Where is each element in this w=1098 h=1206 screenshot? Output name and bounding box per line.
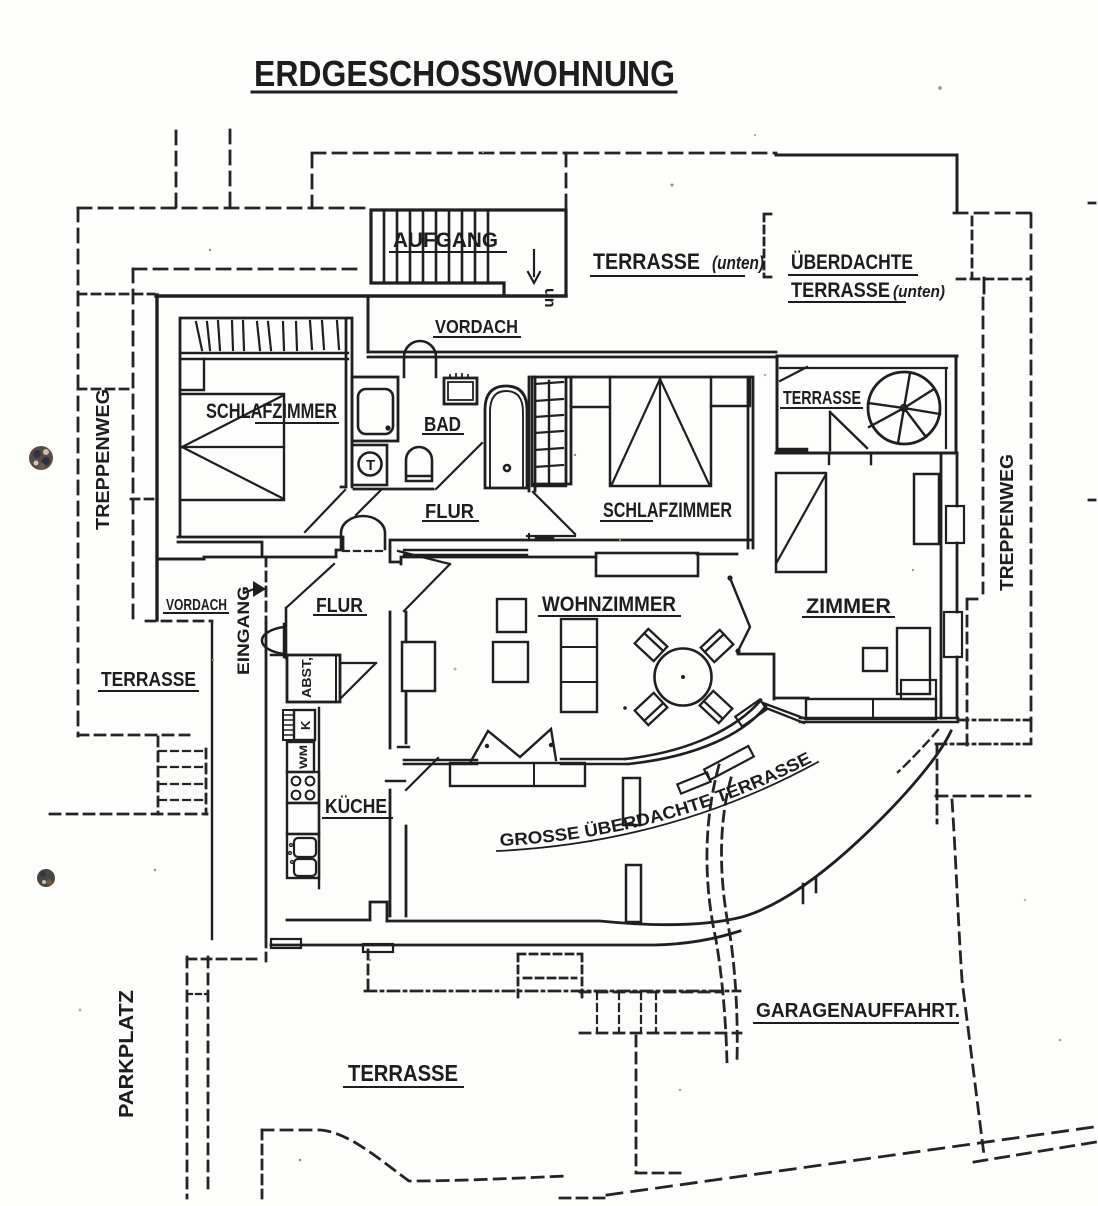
svg-text:GARAGENAUFFAHRT.: GARAGENAUFFAHRT. [756,1000,960,1022]
svg-text:PARKPLATZ: PARKPLATZ [116,990,138,1118]
svg-text:TREPPENWEG: TREPPENWEG [997,454,1017,591]
svg-text:TREPPENWEG: TREPPENWEG [93,389,113,530]
svg-text:AUFGANG: AUFGANG [393,229,498,252]
svg-text:KÜCHE: KÜCHE [325,795,387,818]
svg-text:(unten): (unten) [712,253,764,273]
svg-text:ÜBERDACHTE: ÜBERDACHTE [791,251,913,274]
svg-text:TERRASSE: TERRASSE [783,388,861,408]
svg-text:un: un [541,288,558,308]
svg-text:WOHNZIMMER: WOHNZIMMER [542,593,676,616]
svg-text:SCHLAFZIMMER: SCHLAFZIMMER [206,400,337,423]
svg-text:T: T [366,457,375,474]
svg-text:VORDACH: VORDACH [435,317,518,337]
svg-text:TERRASSE: TERRASSE [593,249,700,274]
svg-text:VORDACH: VORDACH [166,597,227,614]
svg-text:K: K [298,720,313,730]
svg-text:EINGANG: EINGANG [234,586,253,675]
svg-text:TERRASSE: TERRASSE [791,279,890,302]
svg-text:ABST,: ABST, [299,657,314,698]
svg-text:WM: WM [298,745,310,769]
svg-text:ERDGESCHOSSWOHNUNG: ERDGESCHOSSWOHNUNG [254,53,675,94]
svg-text:SCHLAFZIMMER: SCHLAFZIMMER [603,499,732,522]
svg-text:ZIMMER: ZIMMER [806,595,891,618]
svg-text:TERRASSE: TERRASSE [101,669,196,691]
svg-text:FLUR: FLUR [425,501,475,523]
svg-text:FLUR: FLUR [316,595,363,617]
svg-text:BAD: BAD [424,414,461,436]
svg-text:TERRASSE: TERRASSE [348,1060,458,1086]
svg-text:(unten): (unten) [893,282,945,301]
